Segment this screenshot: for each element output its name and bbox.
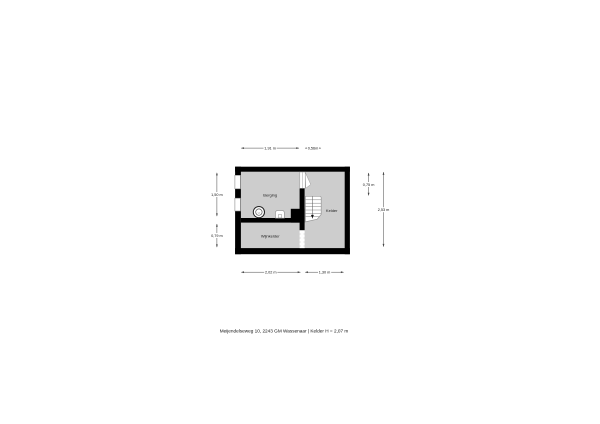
svg-text:Meijendelseweg 10, 2243 GM Was: Meijendelseweg 10, 2243 GM Wassenaar | K… — [220, 329, 349, 334]
svg-text:2,53 m: 2,53 m — [378, 208, 390, 212]
svg-text:0,56m: 0,56m — [308, 146, 319, 150]
svg-text:0,75 m: 0,75 m — [363, 183, 375, 187]
svg-text:2,02 m: 2,02 m — [265, 271, 277, 275]
svg-text:1,50 m: 1,50 m — [211, 193, 223, 197]
svg-text:0,79 m: 0,79 m — [211, 234, 223, 238]
svg-text:1,91 m: 1,91 m — [264, 146, 276, 150]
svg-text:Berging: Berging — [263, 192, 277, 197]
svg-text:Kelder: Kelder — [326, 208, 338, 213]
svg-text:Wijnkelder: Wijnkelder — [261, 233, 280, 238]
svg-text:1,30 m: 1,30 m — [319, 271, 331, 275]
